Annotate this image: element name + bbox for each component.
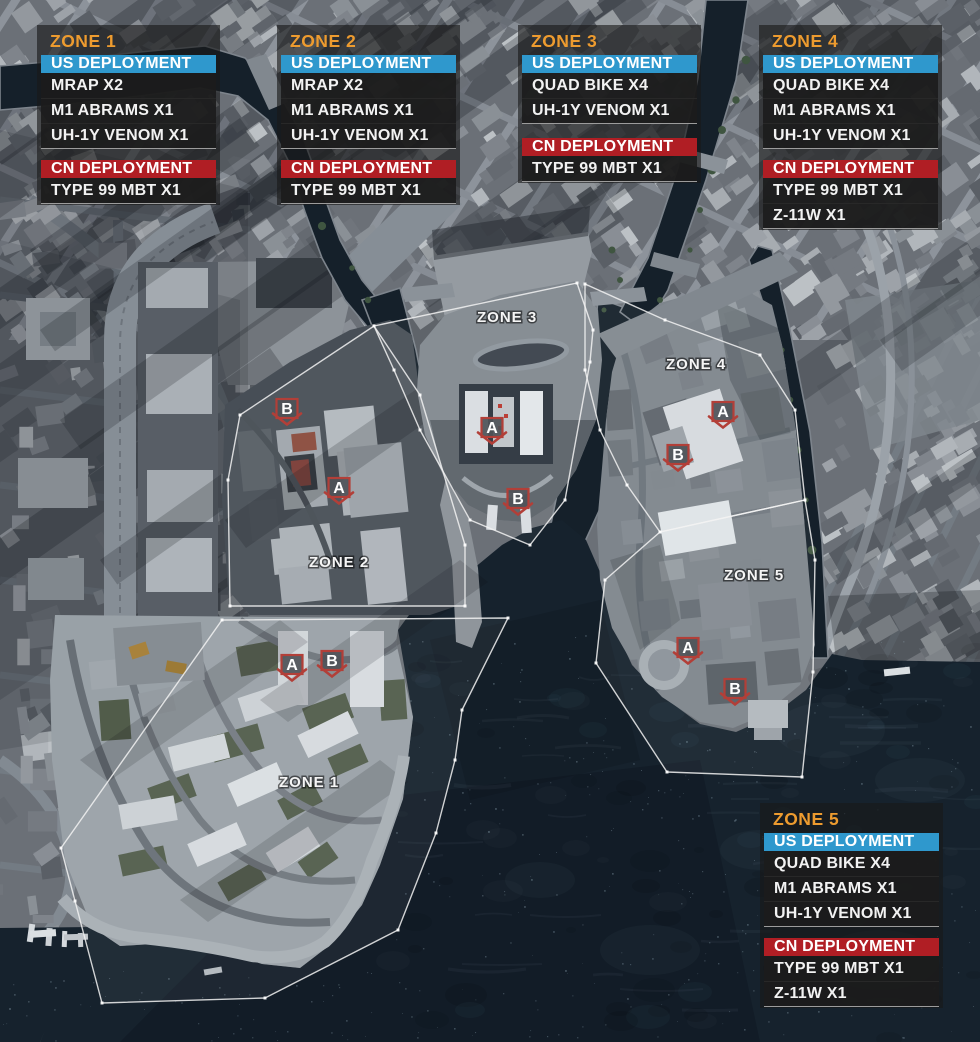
svg-text:B: B: [512, 491, 524, 508]
svg-text:A: A: [333, 480, 345, 497]
svg-text:B: B: [672, 447, 684, 464]
svg-text:ZONE 2: ZONE 2: [309, 554, 369, 571]
svg-text:B: B: [729, 681, 741, 698]
svg-text:B: B: [326, 653, 338, 670]
svg-text:ZONE 4: ZONE 4: [666, 356, 726, 373]
svg-text:ZONE 3: ZONE 3: [477, 309, 537, 326]
svg-text:ZONE 5: ZONE 5: [724, 567, 784, 584]
svg-text:A: A: [486, 420, 498, 437]
svg-text:A: A: [682, 640, 694, 657]
svg-text:A: A: [717, 404, 729, 421]
svg-text:A: A: [286, 657, 298, 674]
svg-text:B: B: [281, 401, 293, 418]
svg-text:ZONE 1: ZONE 1: [279, 774, 339, 791]
